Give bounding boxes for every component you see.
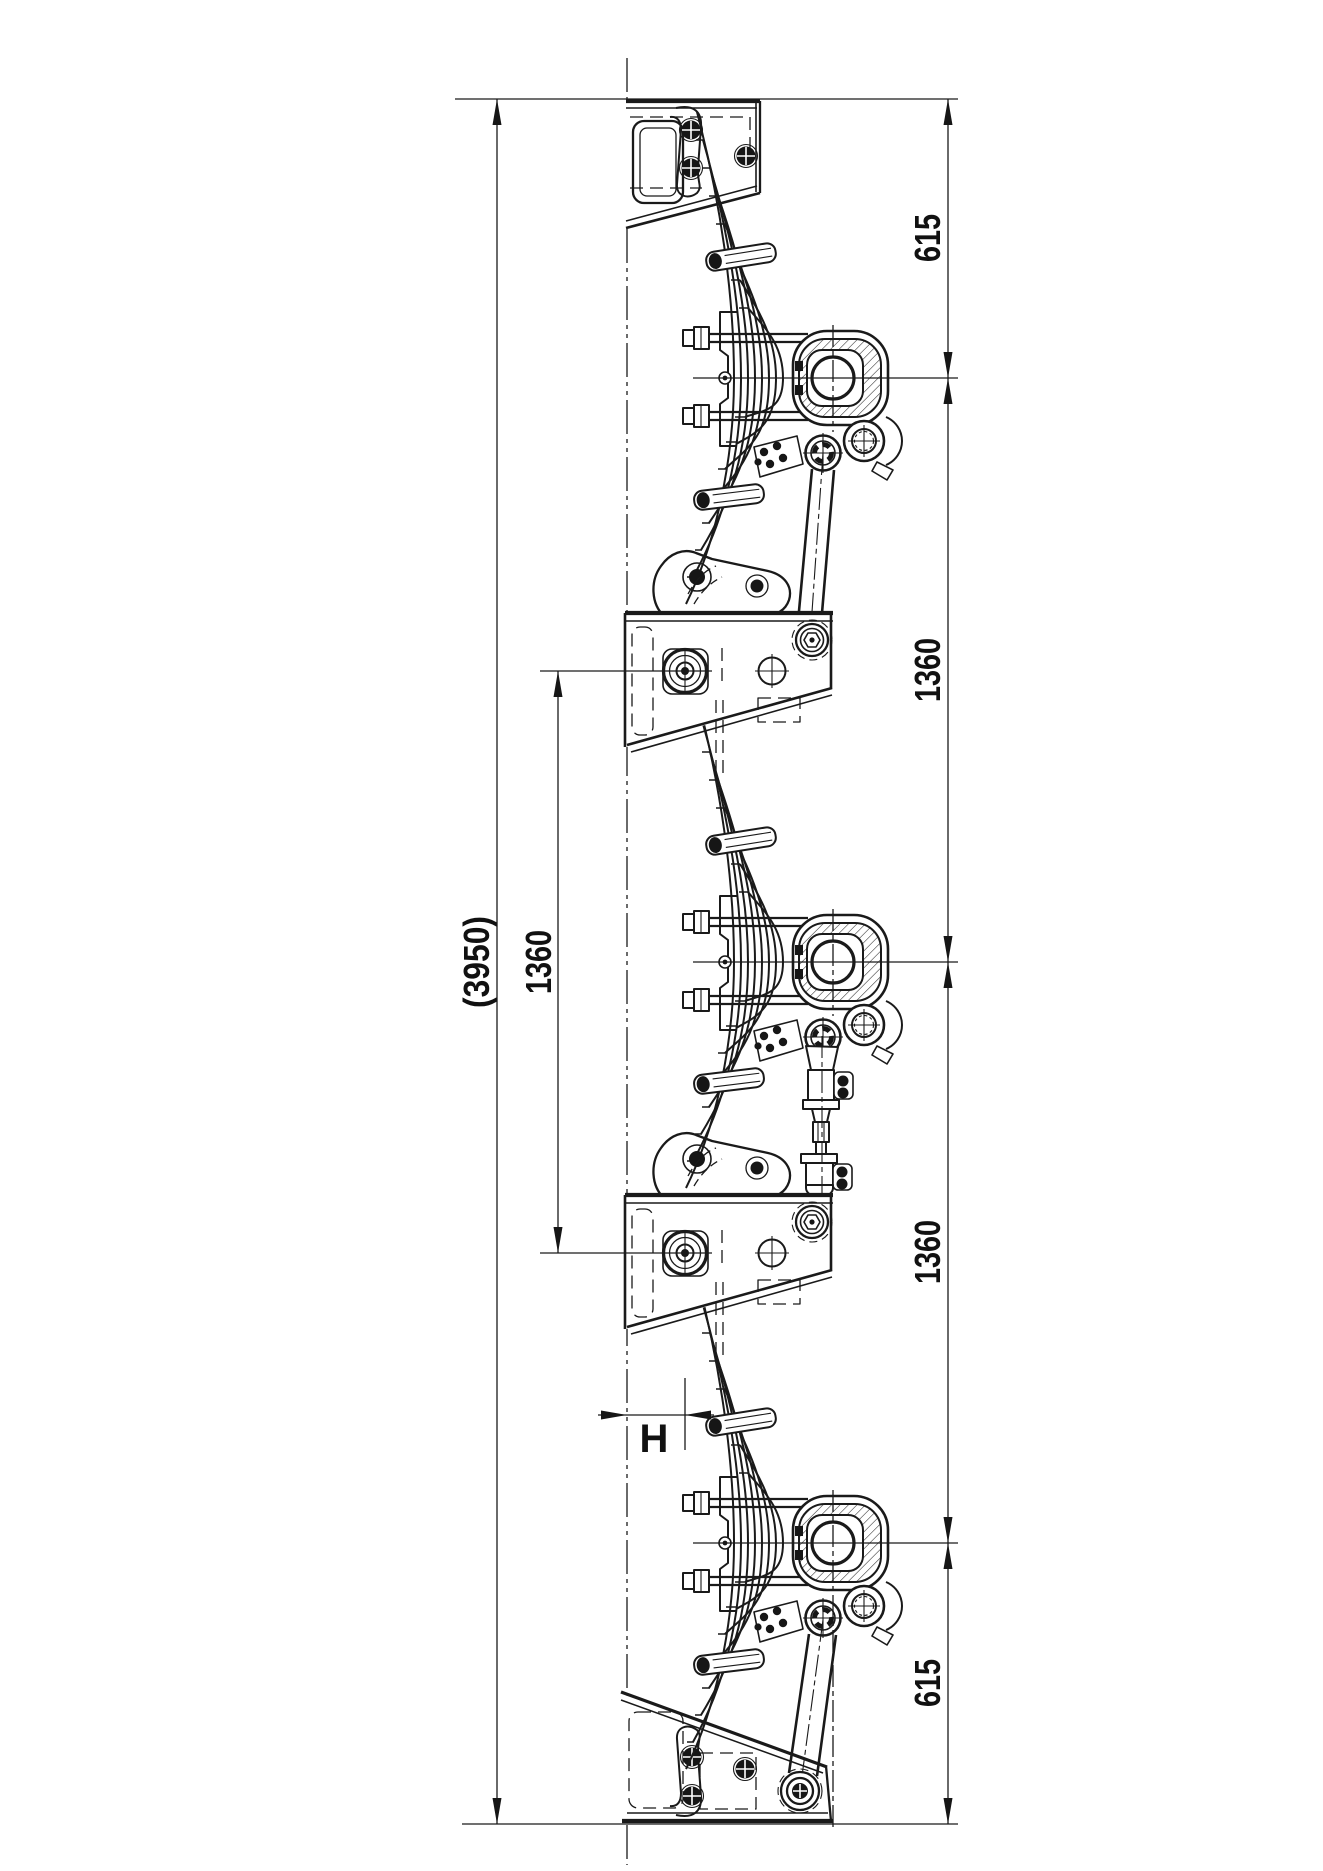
suspension-drawing: (3950) 1360 615 1360 1360 615 bbox=[0, 0, 1323, 1871]
equalizer-rocker-2 bbox=[653, 1133, 790, 1198]
dim-overall: (3950) bbox=[456, 99, 502, 1824]
dim-axle-spacing-front-label: 1360 bbox=[907, 638, 948, 702]
dim-offset-label: H bbox=[640, 1417, 669, 1461]
dim-rear-overhang-label: 615 bbox=[907, 1659, 948, 1707]
dim-axle-spacing-rear-label: 1360 bbox=[907, 1220, 948, 1284]
suspension-drawing-page: (3950) 1360 615 1360 1360 615 bbox=[0, 0, 1323, 1871]
dim-equalizer-label: 1360 bbox=[518, 930, 559, 994]
front-hanger bbox=[626, 100, 760, 229]
equalizer-rocker-1 bbox=[653, 551, 790, 616]
dim-equalizer-spacing: 1360 bbox=[518, 671, 563, 1253]
dim-offset-h: H bbox=[598, 1411, 714, 1462]
dim-overall-label: (3950) bbox=[456, 916, 497, 1008]
spring-axle-group-1 bbox=[683, 112, 902, 604]
dim-front-overhang-label: 615 bbox=[907, 214, 948, 262]
